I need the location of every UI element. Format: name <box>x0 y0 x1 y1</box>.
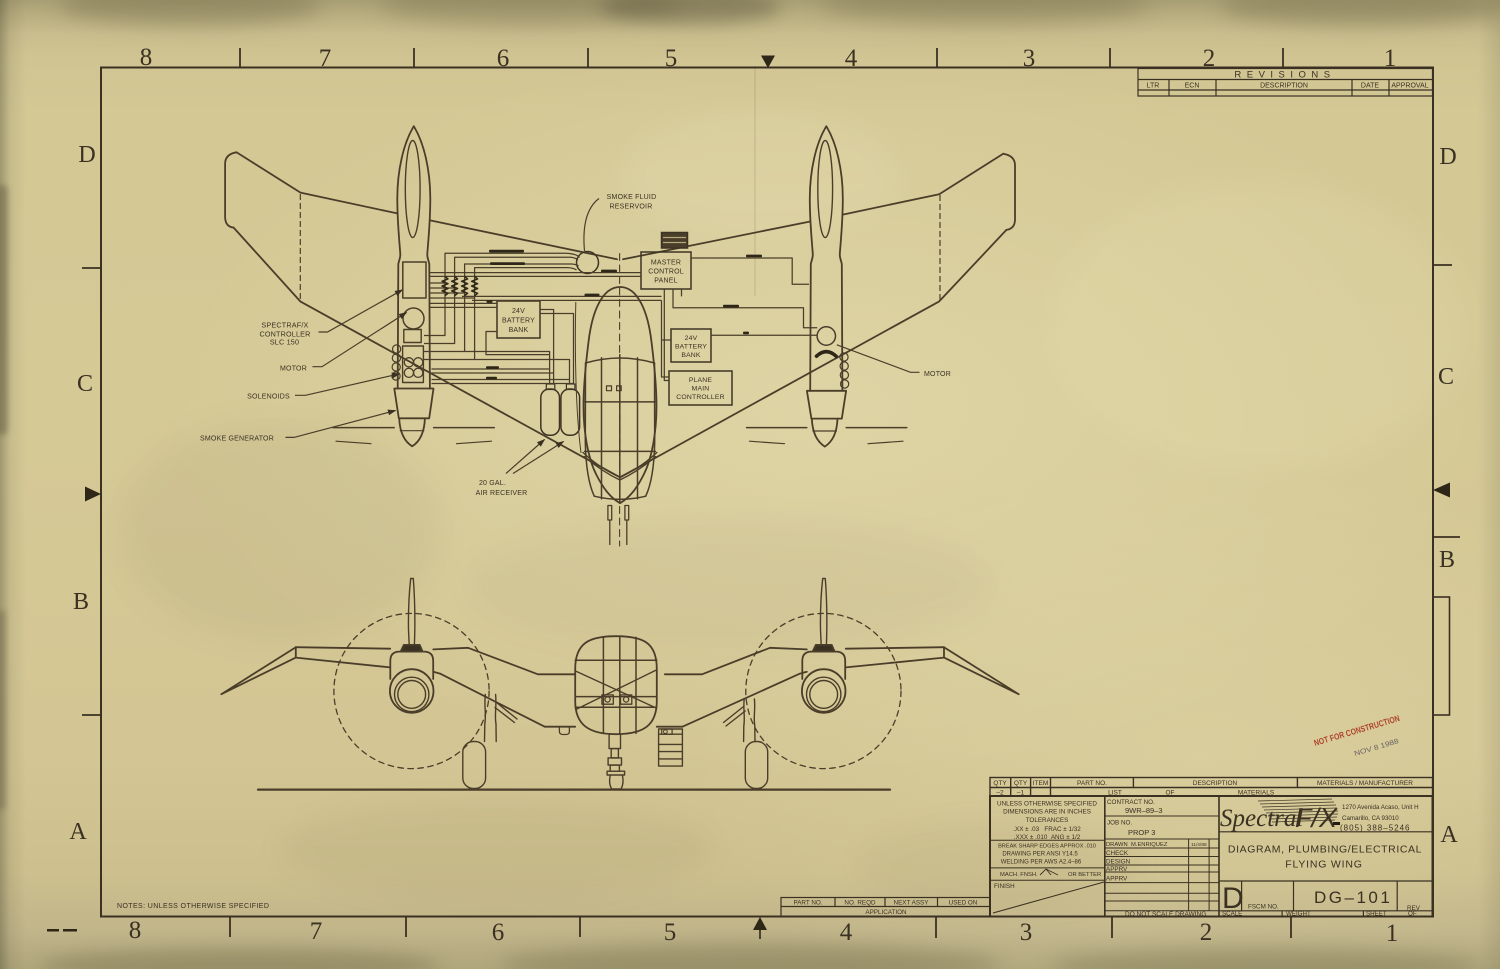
svg-text:D: D <box>1439 144 1456 170</box>
svg-text:SHEET: SHEET <box>1366 911 1387 918</box>
svg-text:SPECTRAF/X: SPECTRAF/X <box>261 321 308 330</box>
svg-text:BATTERY: BATTERY <box>502 318 535 325</box>
svg-text:5: 5 <box>665 45 678 72</box>
svg-text:DO NOT SCALE DRAWING: DO NOT SCALE DRAWING <box>1125 911 1206 918</box>
svg-text:MACH. FNSH.: MACH. FNSH. <box>1000 872 1038 878</box>
svg-text:B: B <box>1439 547 1455 573</box>
svg-text:Camarillo, CA 93010: Camarillo, CA 93010 <box>1342 815 1399 822</box>
svg-text:BANK: BANK <box>681 352 701 359</box>
svg-text:11/4/88: 11/4/88 <box>1191 842 1207 848</box>
svg-text:(805) 388–5246: (805) 388–5246 <box>1340 824 1411 833</box>
svg-text:DIAGRAM, PLUMBING/ELECTRICAL: DIAGRAM, PLUMBING/ELECTRICAL <box>1228 844 1422 856</box>
svg-text:OR BETTER: OR BETTER <box>1068 872 1101 878</box>
svg-text:C: C <box>1438 364 1454 390</box>
svg-text:REVISIONS: REVISIONS <box>1234 70 1335 81</box>
svg-text:DESCRIPTION: DESCRIPTION <box>1193 780 1238 787</box>
svg-text:CHECK: CHECK <box>1106 850 1129 857</box>
svg-text:ECN: ECN <box>1185 83 1200 90</box>
svg-text:WEIGHT: WEIGHT <box>1286 911 1311 918</box>
svg-text:USED ON: USED ON <box>949 900 978 907</box>
svg-text:OF: OF <box>1408 911 1417 918</box>
svg-text:A: A <box>69 819 87 845</box>
svg-text:JOB NO.: JOB NO. <box>1107 820 1132 827</box>
svg-text:CONTROL: CONTROL <box>648 269 684 276</box>
svg-text:8: 8 <box>140 44 153 71</box>
svg-text:1: 1 <box>1386 920 1399 947</box>
svg-text:APPROVAL: APPROVAL <box>1391 83 1428 90</box>
svg-text:MATERIALS / MANUFACTURER: MATERIALS / MANUFACTURER <box>1317 780 1413 787</box>
svg-text:SMOKE GENERATOR: SMOKE GENERATOR <box>200 436 274 443</box>
svg-text:DG–101: DG–101 <box>1314 888 1392 907</box>
svg-text:MOTOR: MOTOR <box>280 366 307 373</box>
svg-text:UNLESS OTHERWISE SPECIFIED: UNLESS OTHERWISE SPECIFIED <box>997 801 1097 808</box>
svg-text:NO. REQD: NO. REQD <box>844 900 876 907</box>
svg-text:M.ENRIQUEZ: M.ENRIQUEZ <box>1131 842 1168 848</box>
svg-text:SMOKE FLUID: SMOKE FLUID <box>607 194 657 201</box>
svg-text:DATE: DATE <box>1361 83 1379 90</box>
svg-text:PROP 3: PROP 3 <box>1128 828 1155 837</box>
svg-text:Spectral: Spectral <box>1220 805 1303 832</box>
svg-text:SLC 150: SLC 150 <box>270 338 299 347</box>
svg-text:4: 4 <box>840 919 853 946</box>
svg-text:TOLERANCES: TOLERANCES <box>1026 817 1069 824</box>
svg-text:AIR RECEIVER: AIR RECEIVER <box>476 490 528 497</box>
svg-text:APPRV: APPRV <box>1106 876 1128 883</box>
svg-text:MAIN: MAIN <box>692 386 710 393</box>
svg-text:3: 3 <box>1020 919 1033 946</box>
svg-text:DESCRIPTION: DESCRIPTION <box>1260 83 1308 90</box>
svg-text:RESERVOIR: RESERVOIR <box>610 204 653 211</box>
svg-text:ITEM: ITEM <box>1033 780 1049 787</box>
svg-text:6: 6 <box>492 919 505 946</box>
svg-text:PANEL: PANEL <box>654 278 677 285</box>
svg-text:FSCM NO.: FSCM NO. <box>1248 904 1279 911</box>
svg-text:SOLENOIDS: SOLENOIDS <box>247 394 290 401</box>
svg-text:DRAWING PER ANSI Y14.5: DRAWING PER ANSI Y14.5 <box>1002 852 1078 858</box>
svg-text:BANK: BANK <box>509 327 529 334</box>
svg-text:MOTOR: MOTOR <box>924 371 951 378</box>
svg-text:CONTROLLER: CONTROLLER <box>676 394 724 401</box>
svg-text:9WR–89–3: 9WR–89–3 <box>1125 806 1163 815</box>
svg-text:DRAWN: DRAWN <box>1106 842 1128 848</box>
svg-text:20 GAL.: 20 GAL. <box>479 480 506 487</box>
svg-text:PLANE: PLANE <box>689 377 713 384</box>
svg-text:MASTER: MASTER <box>651 260 681 267</box>
svg-text:NEXT ASSY: NEXT ASSY <box>894 900 930 907</box>
svg-text:4: 4 <box>845 45 858 72</box>
svg-text:WELDING PER AWS A2.4–86: WELDING PER AWS A2.4–86 <box>1001 860 1082 866</box>
svg-text:.XXX ± .010 ANG ± 1/2: .XXX ± .010 ANG ± 1/2 <box>1014 834 1081 841</box>
svg-text:QTY: QTY <box>993 780 1007 787</box>
svg-text:CONTRACT NO.: CONTRACT NO. <box>1107 799 1155 806</box>
svg-text:F/X: F/X <box>1295 803 1338 833</box>
svg-text:LTR: LTR <box>1147 83 1160 90</box>
svg-text:BATTERY: BATTERY <box>675 344 707 351</box>
svg-text:BREAK SHARP EDGES APPROX .010: BREAK SHARP EDGES APPROX .010 <box>998 844 1096 850</box>
svg-text:APPRV: APPRV <box>1106 866 1128 873</box>
svg-text:1270 Avenida Acaso, Unit H: 1270 Avenida Acaso, Unit H <box>1342 804 1419 811</box>
svg-text:FLYING WING: FLYING WING <box>1285 859 1362 871</box>
svg-text:.XX ± .03 FRAC ± 1/32: .XX ± .03 FRAC ± 1/32 <box>1013 826 1081 833</box>
svg-text:APPLICATION: APPLICATION <box>865 909 907 916</box>
svg-text:DESIGN: DESIGN <box>1106 859 1131 866</box>
svg-text:A: A <box>1440 822 1458 848</box>
svg-text:FINISH: FINISH <box>994 883 1015 890</box>
svg-text:C: C <box>77 371 93 397</box>
svg-text:2: 2 <box>1200 919 1213 946</box>
svg-text:3: 3 <box>1023 45 1036 72</box>
svg-text:QTY: QTY <box>1014 780 1028 787</box>
svg-text:7: 7 <box>319 45 332 72</box>
svg-text:6: 6 <box>497 45 510 72</box>
svg-text:NOTES: UNLESS OTHERWISE SPE: NOTES: UNLESS OTHERWISE SPECIFIED <box>117 903 269 910</box>
svg-text:7: 7 <box>310 918 323 945</box>
svg-text:24V: 24V <box>512 308 525 315</box>
svg-text:SCALE: SCALE <box>1222 911 1242 918</box>
svg-text:DIMENSIONS ARE IN INCHES: DIMENSIONS ARE IN INCHES <box>1003 809 1091 816</box>
svg-text:24V: 24V <box>685 335 698 342</box>
svg-text:8: 8 <box>129 917 142 944</box>
svg-text:NOV 8 1988: NOV 8 1988 <box>1354 738 1400 758</box>
svg-text:5: 5 <box>664 919 677 946</box>
svg-text:PART NO.: PART NO. <box>1077 780 1107 787</box>
svg-text:PART NO.: PART NO. <box>793 900 822 907</box>
svg-text:D: D <box>78 142 95 168</box>
svg-text:B: B <box>73 589 89 615</box>
